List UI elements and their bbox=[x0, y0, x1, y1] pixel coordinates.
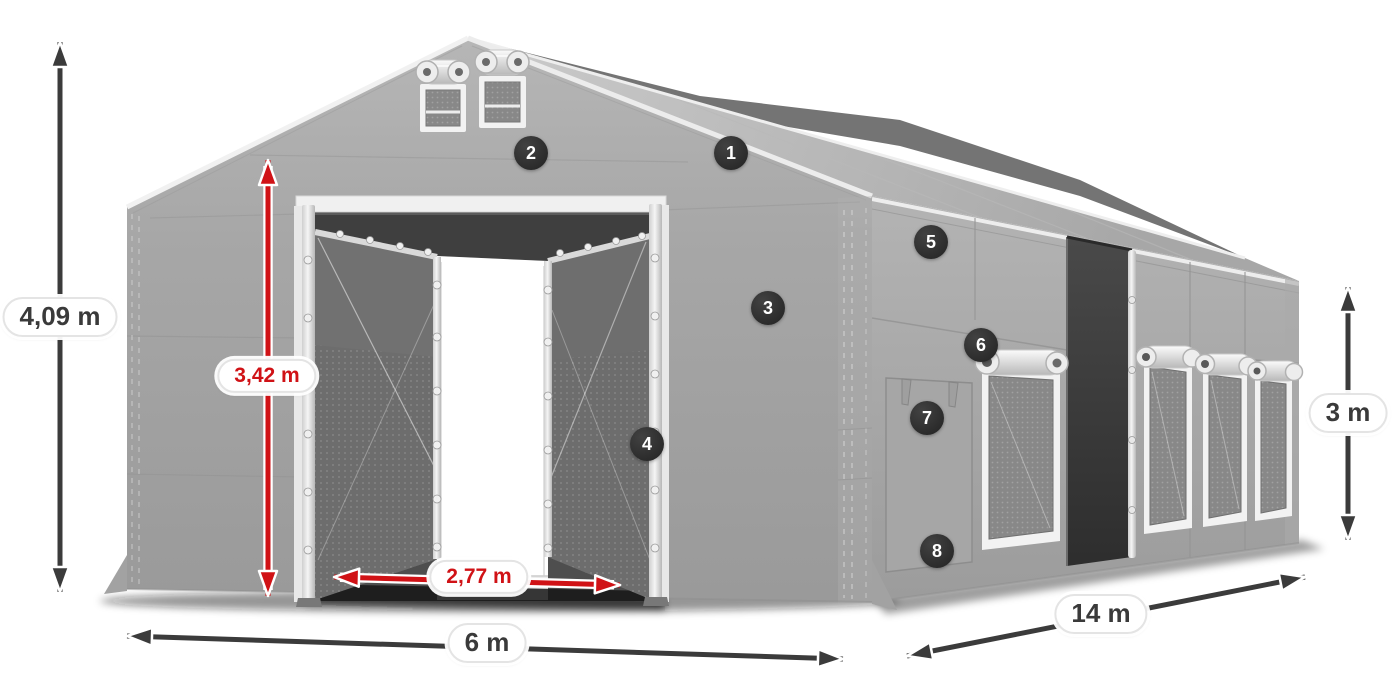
front-corner-pillar bbox=[838, 196, 872, 604]
feature-callout-6[interactable]: 6 bbox=[964, 328, 998, 362]
feature-callout-5[interactable]: 5 bbox=[914, 225, 948, 259]
tent-dimension-diagram: 4,09 m 3,42 m 2,77 m 6 m 14 m 3 m 1 2 3 … bbox=[0, 0, 1400, 700]
feature-callout-8[interactable]: 8 bbox=[920, 534, 954, 568]
entrance-see-through-gap bbox=[437, 256, 548, 600]
entrance-door-leaf-right bbox=[544, 233, 650, 600]
dimension-label-entrance-height: 3,42 m bbox=[217, 359, 316, 393]
side-window-far-1 bbox=[1136, 346, 1201, 534]
tent-entrance bbox=[294, 196, 669, 607]
dimension-label-front-width: 6 m bbox=[448, 623, 527, 663]
dimension-label-side-length: 14 m bbox=[1054, 594, 1147, 634]
dimension-label-total-height: 4,09 m bbox=[3, 297, 118, 337]
side-window-near bbox=[975, 350, 1068, 550]
dimension-label-entrance-width: 2,77 m bbox=[429, 560, 528, 594]
feature-callout-2[interactable]: 2 bbox=[514, 136, 548, 170]
dimension-label-side-height: 3 m bbox=[1309, 393, 1388, 433]
gable-vent-left bbox=[416, 60, 470, 132]
feature-callout-4[interactable]: 4 bbox=[630, 427, 664, 461]
entrance-lintel-beam bbox=[296, 196, 666, 212]
tent-illustration bbox=[0, 0, 1400, 700]
side-doorway-opening bbox=[1067, 237, 1136, 566]
feature-callout-1[interactable]: 1 bbox=[714, 136, 748, 170]
feature-callout-7[interactable]: 7 bbox=[910, 401, 944, 435]
gable-vent-right bbox=[475, 50, 529, 128]
entrance-door-leaf-left bbox=[315, 231, 441, 601]
feature-callout-3[interactable]: 3 bbox=[751, 291, 785, 325]
